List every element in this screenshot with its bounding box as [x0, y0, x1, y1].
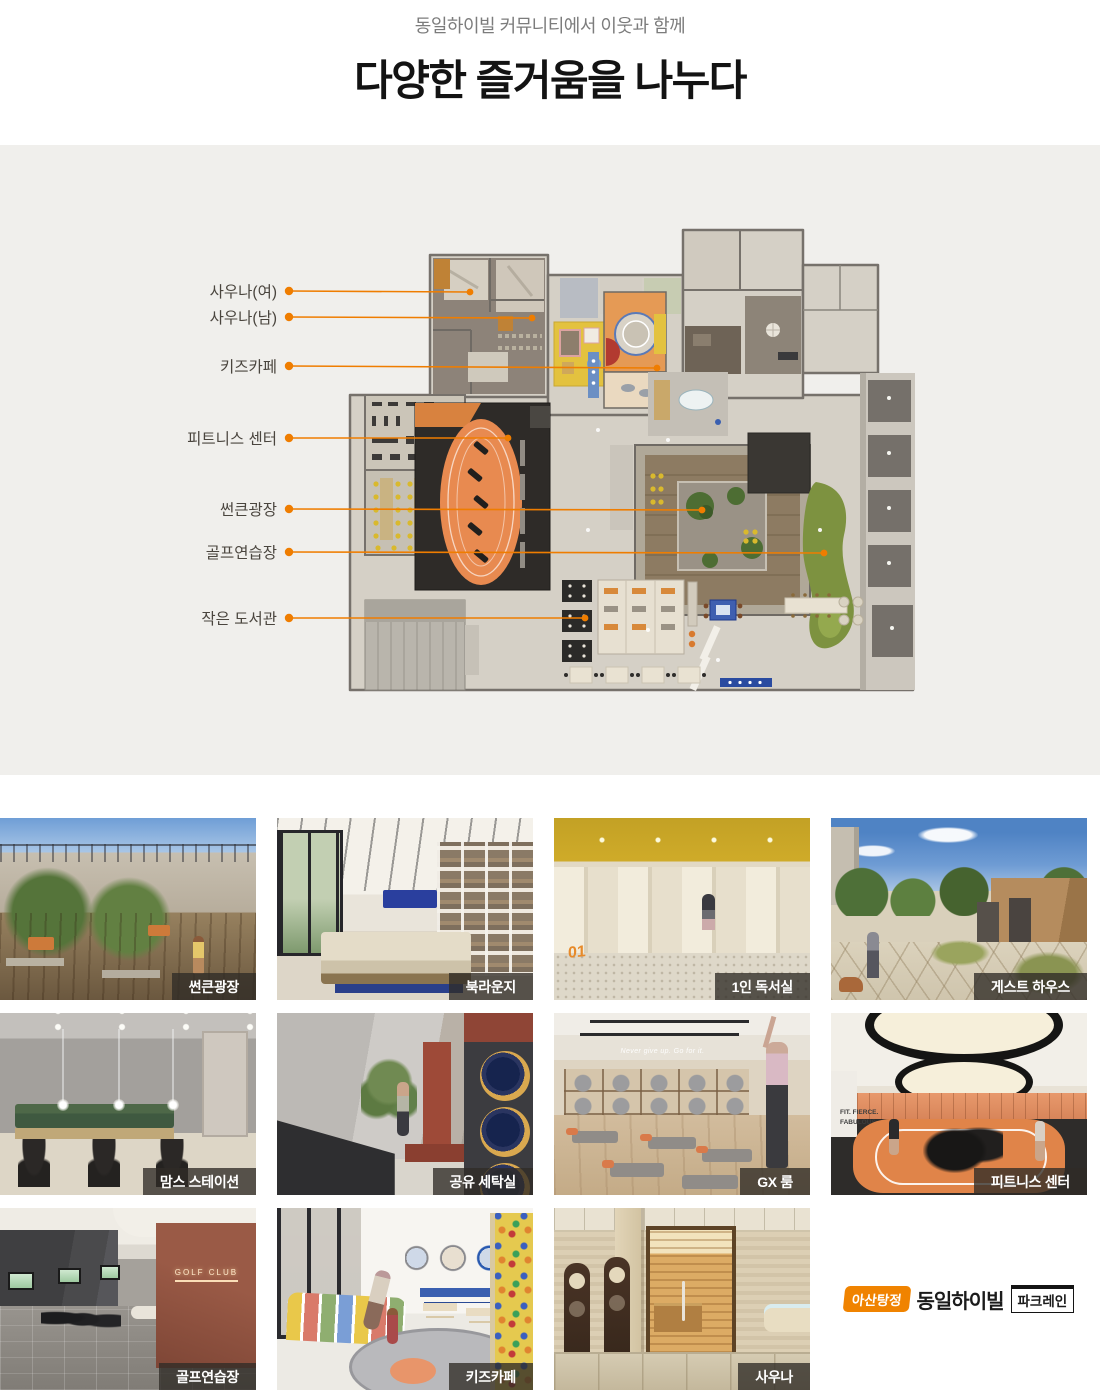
pendant-light [62, 1029, 64, 1101]
foam-roller [566, 1128, 578, 1135]
washing-machine [480, 1051, 530, 1101]
photo-caption: GX 룸 [740, 1168, 810, 1195]
kids-table [423, 1303, 457, 1311]
cloud [918, 827, 978, 843]
photo-shared-laundry: 공유 세탁실 [277, 1013, 533, 1195]
photo-book-lounge: 북라운지 [277, 818, 533, 1000]
person-stretching [766, 1042, 788, 1168]
sauna-bench [654, 1303, 703, 1332]
shower-panel [564, 1263, 590, 1361]
photo-gx-room: Never give up. Go for it. GX 룸 [554, 1013, 810, 1195]
bench-base [15, 1128, 174, 1139]
person [193, 936, 204, 974]
planter [148, 925, 170, 936]
plan-label-small-library: 작은 도서관 [201, 607, 277, 629]
railing [0, 844, 256, 862]
locker-wall [857, 1093, 1087, 1118]
floor-plan-map [0, 145, 1100, 775]
photo-caption: 북라운지 [449, 973, 533, 1000]
chairs [41, 1304, 121, 1332]
washing-machine [480, 1107, 530, 1157]
foam-roller [696, 1146, 708, 1153]
photo-caption: 키즈카페 [449, 1363, 533, 1390]
golf-screen [58, 1268, 81, 1284]
wall-mirrors [405, 1244, 501, 1272]
golf-screen [8, 1272, 34, 1290]
photo-caption: 공유 세탁실 [433, 1168, 534, 1195]
photo-kids-cafe: 키즈카페 [277, 1208, 533, 1390]
plan-label-kids-cafe: 키즈카페 [220, 355, 277, 377]
bath-tub [764, 1304, 810, 1331]
plan-label-sauna-men: 사우나(남) [210, 306, 277, 328]
ball-shelves [564, 1069, 748, 1115]
photo-gallery: 썬큰광장 북라운지 01 1인 독서실 게스트 하우스 [0, 775, 1100, 1392]
shower-panel [604, 1257, 630, 1355]
person [867, 932, 879, 978]
person [889, 1119, 899, 1155]
foam-roller [640, 1134, 652, 1141]
photo-fitness-center: FIT. FIERCE. FABULOUS. 피트니스 센터 [831, 1013, 1087, 1195]
brand-sub-name: 파크레인 [1011, 1285, 1075, 1313]
door-handle [682, 1281, 685, 1321]
plant [361, 1057, 417, 1123]
dog [839, 977, 863, 992]
person [397, 1082, 409, 1136]
golf-club-sign: GOLF CLUB [175, 1268, 238, 1282]
page-title: 다양한 즐거움을 나누다 [0, 47, 1100, 108]
floorplan-section: 사우나(여) 사우나(남) 키즈카페 피트니스 센터 썬큰광장 골프연습장 작은… [0, 145, 1100, 775]
green-bench [15, 1104, 174, 1128]
bench [6, 958, 64, 966]
photo-moms-station: 맘스 스테이션 [0, 1013, 256, 1195]
table-and-chairs [88, 1139, 120, 1187]
photo-reading-room: 01 1인 독서실 [554, 818, 810, 1000]
photo-caption: 사우나 [738, 1363, 810, 1390]
table-and-chairs [18, 1139, 50, 1187]
photo-guest-house: 게스트 하우스 [831, 818, 1087, 1000]
floor-plan-drawing [350, 230, 915, 691]
photo-caption: 썬큰광장 [172, 973, 256, 1000]
plan-label-fitness-center: 피트니스 센터 [187, 427, 277, 449]
photo-caption: 피트니스 센터 [974, 1168, 1087, 1195]
yoga-mat [572, 1131, 618, 1143]
person [702, 894, 715, 930]
planter [28, 937, 54, 950]
terracotta-wall [423, 1042, 451, 1158]
ceiling-lights [554, 825, 810, 847]
foam-roller [602, 1160, 614, 1168]
photo-sauna: 사우나 [554, 1208, 810, 1390]
brand-logo: 아산탕정 동일하이빌 파크레인 [831, 1208, 1087, 1390]
rug [335, 984, 463, 993]
pendant-light [172, 1029, 174, 1101]
brand-name: 동일하이빌 [917, 1285, 1004, 1314]
pendant-light [118, 1029, 120, 1101]
orange-circle [390, 1358, 436, 1384]
ceiling-lights [0, 1013, 256, 1031]
golf-screen [100, 1265, 120, 1280]
photo-caption: 맘스 스테이션 [143, 1168, 256, 1195]
sauna-door [646, 1226, 736, 1365]
terracotta-wall [156, 1223, 256, 1369]
photo-caption: 골프연습장 [159, 1363, 256, 1390]
photo-sunken-plaza: 썬큰광장 [0, 818, 256, 1000]
photo-caption: 게스트 하우스 [974, 973, 1087, 1000]
grass [928, 939, 992, 967]
person [1035, 1121, 1045, 1161]
brand-location-badge: 아산탕정 [842, 1286, 910, 1312]
door-number: 01 [568, 943, 586, 963]
yoga-mat [702, 1149, 752, 1162]
photo-golf-range: GOLF CLUB 골프연습장 [0, 1208, 256, 1390]
study-partitions [554, 867, 810, 956]
page-header: 동일하이빌 커뮤니티에서 이웃과 함께 다양한 즐거움을 나누다 [0, 0, 1100, 145]
ceiling-light-bar [590, 1020, 749, 1023]
plan-label-sauna-women: 사우나(여) [210, 280, 277, 302]
wall-art [383, 890, 437, 908]
yoga-mat [610, 1163, 664, 1177]
plan-label-sunken-plaza: 썬큰광장 [220, 498, 277, 520]
door [202, 1031, 248, 1137]
photo-caption: 1인 독서실 [715, 973, 810, 1000]
exercise-bikes [923, 1117, 1003, 1173]
wall-quote: Never give up. Go for it. [621, 1048, 705, 1055]
plan-label-golf-range: 골프연습장 [206, 541, 277, 563]
yoga-mat [648, 1137, 696, 1149]
yoga-mat [682, 1175, 738, 1189]
header-subtitle: 동일하이빌 커뮤니티에서 이웃과 함께 [0, 0, 1100, 38]
child [387, 1308, 398, 1344]
